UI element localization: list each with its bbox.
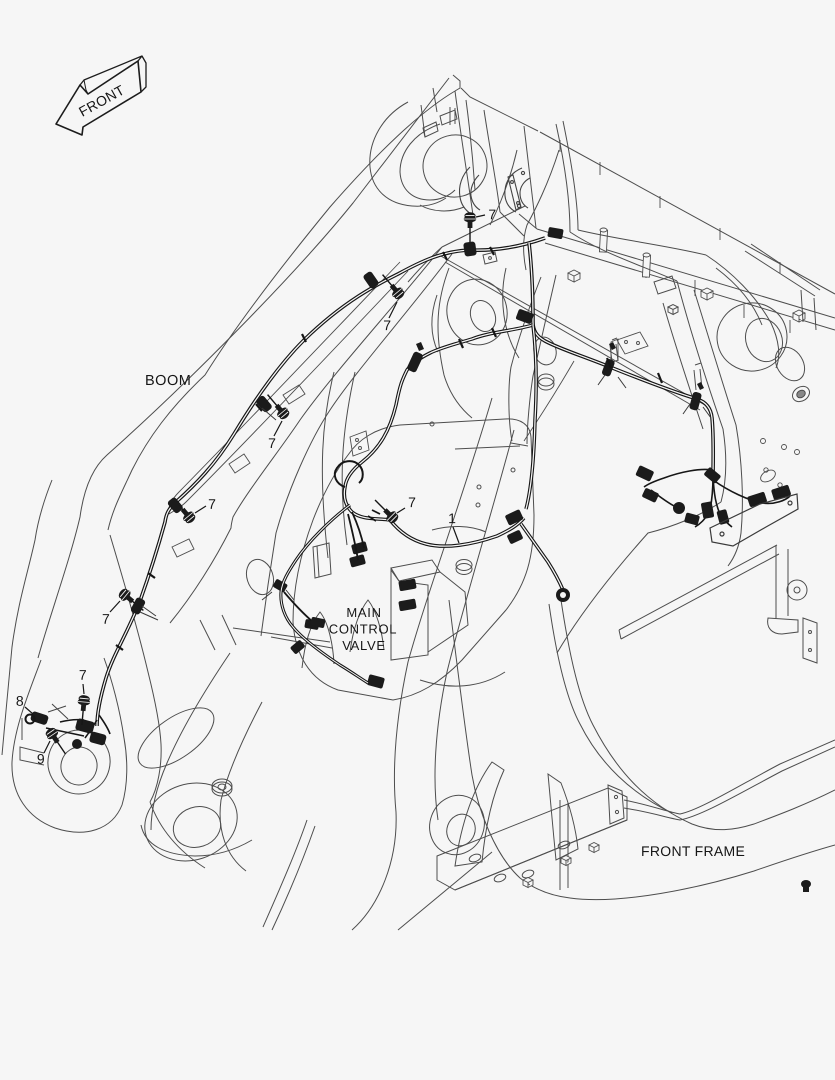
svg-text:7: 7 (102, 611, 110, 627)
svg-text:VALVE: VALVE (342, 638, 386, 653)
svg-text:1: 1 (448, 510, 456, 526)
svg-text:7: 7 (408, 494, 416, 510)
svg-text:8: 8 (16, 693, 24, 709)
svg-text:7: 7 (268, 435, 276, 451)
svg-text:CONTROL: CONTROL (329, 621, 397, 636)
svg-text:7: 7 (383, 317, 391, 333)
svg-text:7: 7 (208, 496, 216, 512)
svg-text:FRONT FRAME: FRONT FRAME (641, 843, 745, 859)
svg-text:7: 7 (79, 667, 87, 683)
svg-text:MAIN: MAIN (346, 605, 381, 620)
svg-text:BOOM: BOOM (145, 373, 191, 389)
svg-text:9: 9 (37, 751, 45, 767)
svg-text:7: 7 (488, 206, 496, 222)
